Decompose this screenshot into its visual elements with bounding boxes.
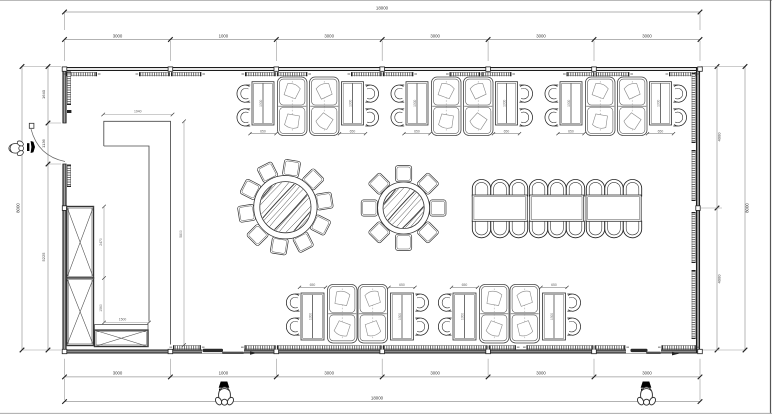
svg-text:650: 650 <box>551 283 557 287</box>
svg-text:1300: 1300 <box>550 313 554 320</box>
svg-text:5800: 5800 <box>179 230 183 238</box>
svg-text:1300: 1300 <box>502 100 506 107</box>
svg-text:650: 650 <box>310 283 316 287</box>
svg-text:650: 650 <box>414 130 420 134</box>
svg-text:1300: 1300 <box>398 313 402 320</box>
svg-text:1300: 1300 <box>460 313 464 320</box>
svg-text:3000: 3000 <box>536 33 546 38</box>
svg-text:1000: 1000 <box>219 33 229 38</box>
svg-text:1300: 1300 <box>656 100 660 107</box>
svg-text:650: 650 <box>260 130 266 134</box>
svg-text:1300: 1300 <box>413 100 417 107</box>
svg-text:1300: 1300 <box>348 100 352 107</box>
svg-text:1940: 1940 <box>134 109 142 113</box>
svg-text:8000: 8000 <box>745 203 750 213</box>
svg-text:1300: 1300 <box>308 313 312 320</box>
svg-text:650: 650 <box>504 130 510 134</box>
svg-text:3000: 3000 <box>324 371 334 376</box>
svg-text:1000: 1000 <box>219 371 229 376</box>
svg-text:4000: 4000 <box>717 274 722 284</box>
svg-text:3000: 3000 <box>536 371 546 376</box>
svg-text:3000: 3000 <box>113 33 123 38</box>
svg-text:18000: 18000 <box>371 395 384 400</box>
svg-text:3000: 3000 <box>324 33 334 38</box>
svg-text:3000: 3000 <box>430 33 440 38</box>
svg-text:650: 650 <box>399 283 405 287</box>
svg-text:3000: 3000 <box>642 371 652 376</box>
svg-text:2470: 2470 <box>99 238 103 246</box>
svg-text:650: 650 <box>658 130 664 134</box>
svg-text:1136: 1136 <box>41 138 46 147</box>
svg-text:1300: 1300 <box>567 100 571 107</box>
svg-text:3000: 3000 <box>642 33 652 38</box>
svg-text:1300: 1300 <box>259 100 263 107</box>
svg-text:1500: 1500 <box>119 317 127 321</box>
svg-text:650: 650 <box>462 283 468 287</box>
svg-text:8000: 8000 <box>16 203 21 213</box>
svg-text:650: 650 <box>350 130 356 134</box>
svg-text:3000: 3000 <box>113 371 123 376</box>
svg-text:5225: 5225 <box>41 252 46 262</box>
svg-text:3000: 3000 <box>430 371 440 376</box>
svg-text:18000: 18000 <box>376 6 389 11</box>
svg-text:1560: 1560 <box>99 304 103 312</box>
svg-text:1640: 1640 <box>41 89 46 99</box>
svg-text:650: 650 <box>568 130 574 134</box>
svg-text:4000: 4000 <box>717 132 722 142</box>
